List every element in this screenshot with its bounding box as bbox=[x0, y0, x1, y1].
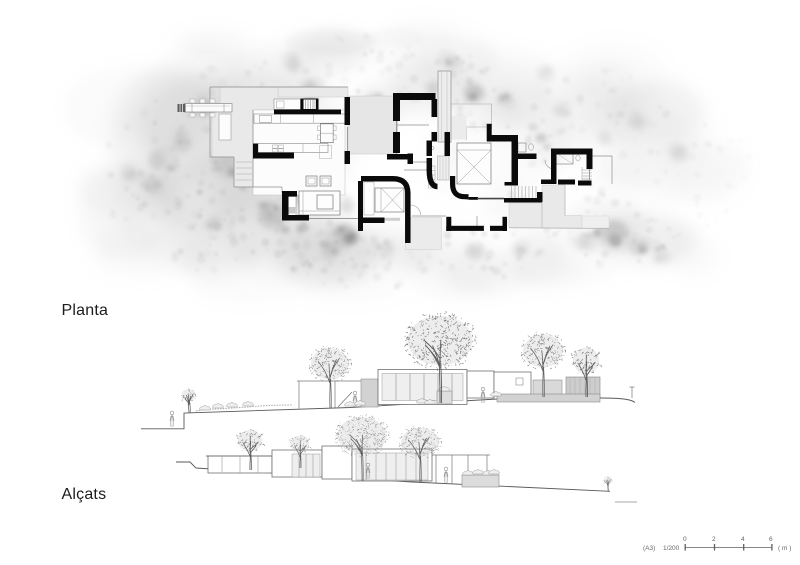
svg-text:Alçats: Alçats bbox=[62, 486, 107, 503]
svg-text:Planta: Planta bbox=[62, 302, 109, 319]
svg-text:6: 6 bbox=[769, 536, 773, 543]
svg-text:(A3): (A3) bbox=[643, 545, 655, 552]
svg-text:4: 4 bbox=[741, 536, 745, 543]
svg-text:2: 2 bbox=[712, 536, 716, 543]
svg-text:1/200: 1/200 bbox=[663, 545, 680, 552]
svg-text:0: 0 bbox=[683, 536, 687, 543]
svg-text:( m ): ( m ) bbox=[778, 545, 791, 552]
